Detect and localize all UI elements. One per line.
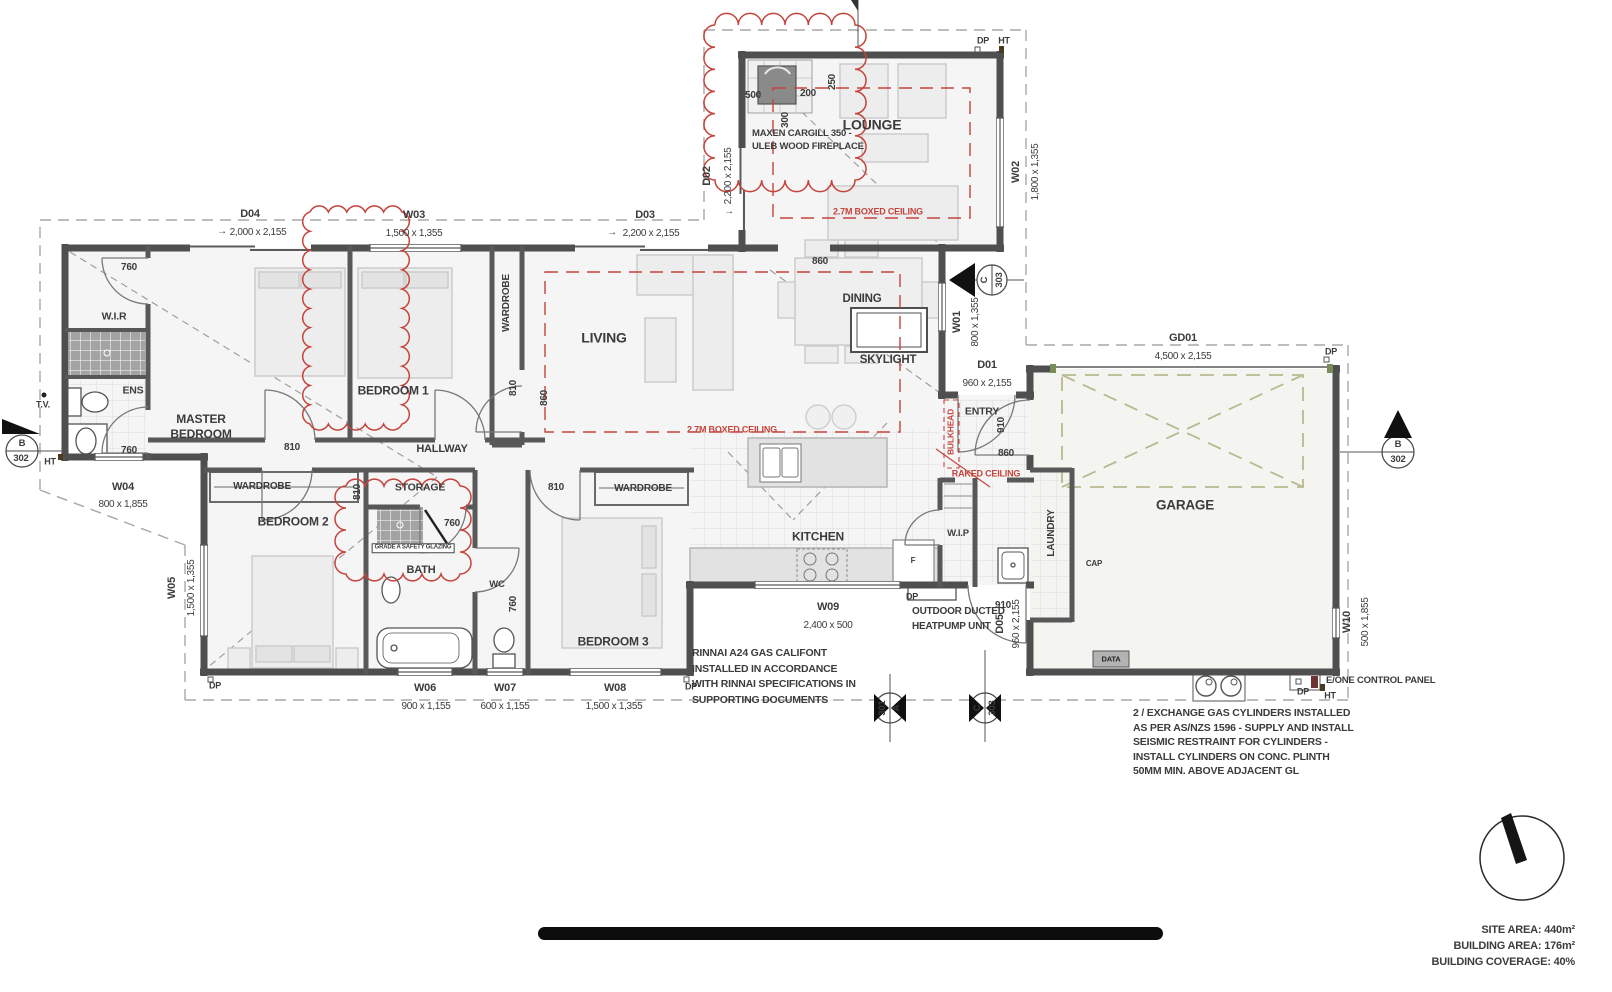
opening-size-w03: 1,500 x 1,355 bbox=[386, 228, 443, 241]
eone-panel-note: E/ONE CONTROL PANEL bbox=[1326, 675, 1435, 686]
room-label-master-bedroom: MASTER BEDROOM bbox=[170, 412, 231, 442]
skylight-outline bbox=[851, 308, 927, 352]
califont-note: RINNAI A24 GAS CALIFONT INSTALLED IN ACC… bbox=[692, 646, 856, 708]
skylight-label: SKYLIGHT bbox=[860, 353, 917, 367]
site-area-stat: SITE AREA: 440m² bbox=[1481, 924, 1575, 936]
downpipe-label-kitchen: DP bbox=[906, 591, 918, 602]
downpipe-label-bed3: DP bbox=[685, 681, 697, 692]
opening-size-d05: 960 x 2,155 bbox=[1011, 600, 1024, 649]
cap-label: CAP bbox=[1086, 559, 1102, 569]
opening-size-d02: 2,200 x 2,155 bbox=[723, 148, 736, 205]
opening-size-gd01: 4,500 x 2,155 bbox=[1155, 351, 1212, 364]
hose-tap-label-left: HT bbox=[44, 456, 56, 467]
opening-size-d04: 2,000 x 2,155 bbox=[230, 227, 287, 240]
section-marker-a-letter: A bbox=[891, 705, 903, 712]
room-label-storage: STORAGE bbox=[395, 481, 445, 494]
dim-hall-opening: 860 bbox=[539, 390, 552, 406]
room-label-wir: W.I.R bbox=[102, 310, 127, 323]
opening-code-w01: W01 bbox=[951, 311, 965, 333]
downpipe-label-garage: DP bbox=[1325, 346, 1337, 357]
room-label-wardrobe-bed2: WARDROBE bbox=[233, 481, 291, 494]
room-label-bedroom2: BEDROOM 2 bbox=[258, 515, 329, 530]
section-marker-c-number-top: 303 bbox=[994, 272, 1006, 287]
room-label-bath: BATH bbox=[407, 564, 436, 578]
opening-code-d03: D03 bbox=[635, 209, 655, 223]
bulkhead-note: BULKHEAD bbox=[946, 409, 957, 455]
room-label-wip: W.I.P bbox=[947, 528, 969, 540]
room-label-garage: GARAGE bbox=[1156, 498, 1214, 515]
building-area-stat: BUILDING AREA: 176m² bbox=[1454, 940, 1576, 952]
hose-tap-label-lounge: HT bbox=[998, 35, 1010, 46]
gas-cylinders-note: 2 / EXCHANGE GAS CYLINDERS INSTALLED AS … bbox=[1133, 706, 1354, 779]
dim-master-door: 810 bbox=[284, 442, 300, 455]
room-label-bedroom3: BEDROOM 3 bbox=[578, 635, 649, 650]
data-point-label: DATA bbox=[1102, 654, 1121, 663]
north-compass bbox=[1480, 813, 1564, 900]
opening-size-w02: 1,800 x 1,355 bbox=[1030, 144, 1043, 201]
section-marker-b-number-right: 302 bbox=[1390, 454, 1405, 466]
opening-size-w01: 800 x 1,355 bbox=[970, 298, 983, 347]
fridge-label: F bbox=[911, 556, 916, 566]
dim-fireplace-300: 300 bbox=[780, 112, 793, 128]
home-indicator-bar[interactable] bbox=[538, 927, 1163, 940]
opening-code-w09: W09 bbox=[817, 601, 839, 615]
opening-code-gd01: GD01 bbox=[1169, 332, 1197, 346]
section-marker-c-number-bottom: 303 bbox=[987, 700, 999, 715]
dim-wir-door: 760 bbox=[121, 262, 137, 275]
boxed-ceiling-note-lounge: 2.7M BOXED CEILING bbox=[833, 206, 923, 217]
hose-tap-label-bottom-right: HT bbox=[1324, 690, 1336, 701]
raked-ceiling-note: RAKED CEILING bbox=[952, 468, 1020, 479]
building-coverage-stat: BUILDING COVERAGE: 40% bbox=[1431, 956, 1575, 968]
room-label-ens: ENS bbox=[123, 384, 144, 397]
room-label-dining: DINING bbox=[842, 292, 881, 306]
heatpump-note: OUTDOOR DUCTED HEATPUMP UNIT bbox=[912, 604, 1005, 634]
downpipe-label-lounge: DP bbox=[977, 35, 989, 46]
fireplace bbox=[748, 60, 812, 113]
dim-lounge-opening: 860 bbox=[812, 256, 828, 269]
opening-size-w10: 500 x 1,855 bbox=[1360, 598, 1373, 647]
opening-size-w08: 1,500 x 1,355 bbox=[586, 701, 643, 714]
room-label-bedroom1: BEDROOM 1 bbox=[358, 384, 429, 399]
section-marker-b-letter-left: B bbox=[19, 438, 26, 450]
opening-size-w07: 600 x 1,155 bbox=[481, 701, 530, 714]
section-marker-c-letter-bottom: C bbox=[972, 705, 984, 712]
room-label-living: LIVING bbox=[581, 329, 626, 347]
opening-code-w04: W04 bbox=[112, 481, 134, 495]
opening-code-w03: W03 bbox=[403, 209, 425, 223]
room-label-laundry: LAUNDRY bbox=[1046, 509, 1059, 556]
room-label-entry: ENTRY bbox=[965, 405, 999, 418]
opening-size-w09: 2,400 x 500 bbox=[804, 620, 853, 633]
room-label-wardrobe-bed3: WARDROBE bbox=[614, 483, 672, 496]
dim-entry-opening: 860 bbox=[998, 448, 1014, 461]
dim-bedroom1-door: 810 bbox=[508, 380, 521, 396]
room-label-hallway: HALLWAY bbox=[416, 443, 467, 457]
opening-code-w06: W06 bbox=[414, 682, 436, 696]
room-label-kitchen: KITCHEN bbox=[792, 530, 844, 545]
door-direction-arrow-d03: → bbox=[607, 227, 617, 240]
tv-point-label: T.V. bbox=[36, 399, 50, 410]
opening-code-w02: W02 bbox=[1010, 161, 1024, 183]
door-direction-arrow-d04: → bbox=[217, 226, 227, 239]
opening-size-d03: 2,200 x 2,155 bbox=[623, 228, 680, 241]
section-marker-c-letter-top: C bbox=[979, 277, 991, 284]
opening-code-d01: D01 bbox=[977, 359, 997, 373]
opening-size-w04: 800 x 1,855 bbox=[99, 499, 148, 512]
safety-glazing-note: GRADE A SAFETY GLAZING bbox=[372, 543, 455, 553]
dim-ens-door: 760 bbox=[121, 445, 137, 458]
opening-size-w06: 900 x 1,155 bbox=[402, 701, 451, 714]
section-marker-a-number: 301 bbox=[877, 700, 889, 715]
dim-entry-door: 910 bbox=[996, 417, 1009, 433]
downpipe-label-bed2: DP bbox=[209, 680, 221, 691]
dim-fireplace-250: 250 bbox=[827, 74, 840, 90]
fireplace-note: MAXEN CARGILL 350 - ULEB WOOD FIREPLACE bbox=[752, 127, 864, 153]
opening-code-w10: W10 bbox=[1341, 611, 1355, 633]
dim-storage-door: 810 bbox=[352, 484, 365, 500]
floor-plan-canvas: LOUNGE LIVING DINING SKYLIGHT MASTER BED… bbox=[0, 0, 1612, 992]
opening-size-d01: 960 x 2,155 bbox=[963, 378, 1012, 391]
section-marker-b-number-left: 302 bbox=[13, 453, 28, 465]
opening-code-d04: D04 bbox=[240, 208, 260, 222]
dim-wc-door: 760 bbox=[508, 596, 521, 612]
dim-bath-door: 760 bbox=[444, 518, 460, 531]
door-direction-arrow-d02: → bbox=[724, 206, 734, 219]
dim-fireplace-500: 500 bbox=[745, 90, 761, 103]
dim-fireplace-200: 200 bbox=[800, 88, 816, 101]
opening-code-w07: W07 bbox=[494, 682, 516, 696]
section-marker-b-letter-right: B bbox=[1395, 439, 1402, 451]
boxed-ceiling-note-living: 2.7M BOXED CEILING bbox=[687, 424, 777, 435]
downpipe-label-bottom-right: DP bbox=[1297, 686, 1309, 697]
opening-code-w05: W05 bbox=[166, 577, 180, 599]
room-label-wardrobe-bed1: WARDROBE bbox=[501, 274, 514, 332]
room-label-wc: WC bbox=[489, 579, 504, 591]
opening-code-d02: D02 bbox=[701, 166, 715, 186]
opening-code-w08: W08 bbox=[604, 682, 626, 696]
opening-size-w05: 1,500 x 1,355 bbox=[186, 560, 199, 617]
dim-bedroom3-door: 810 bbox=[548, 482, 564, 495]
